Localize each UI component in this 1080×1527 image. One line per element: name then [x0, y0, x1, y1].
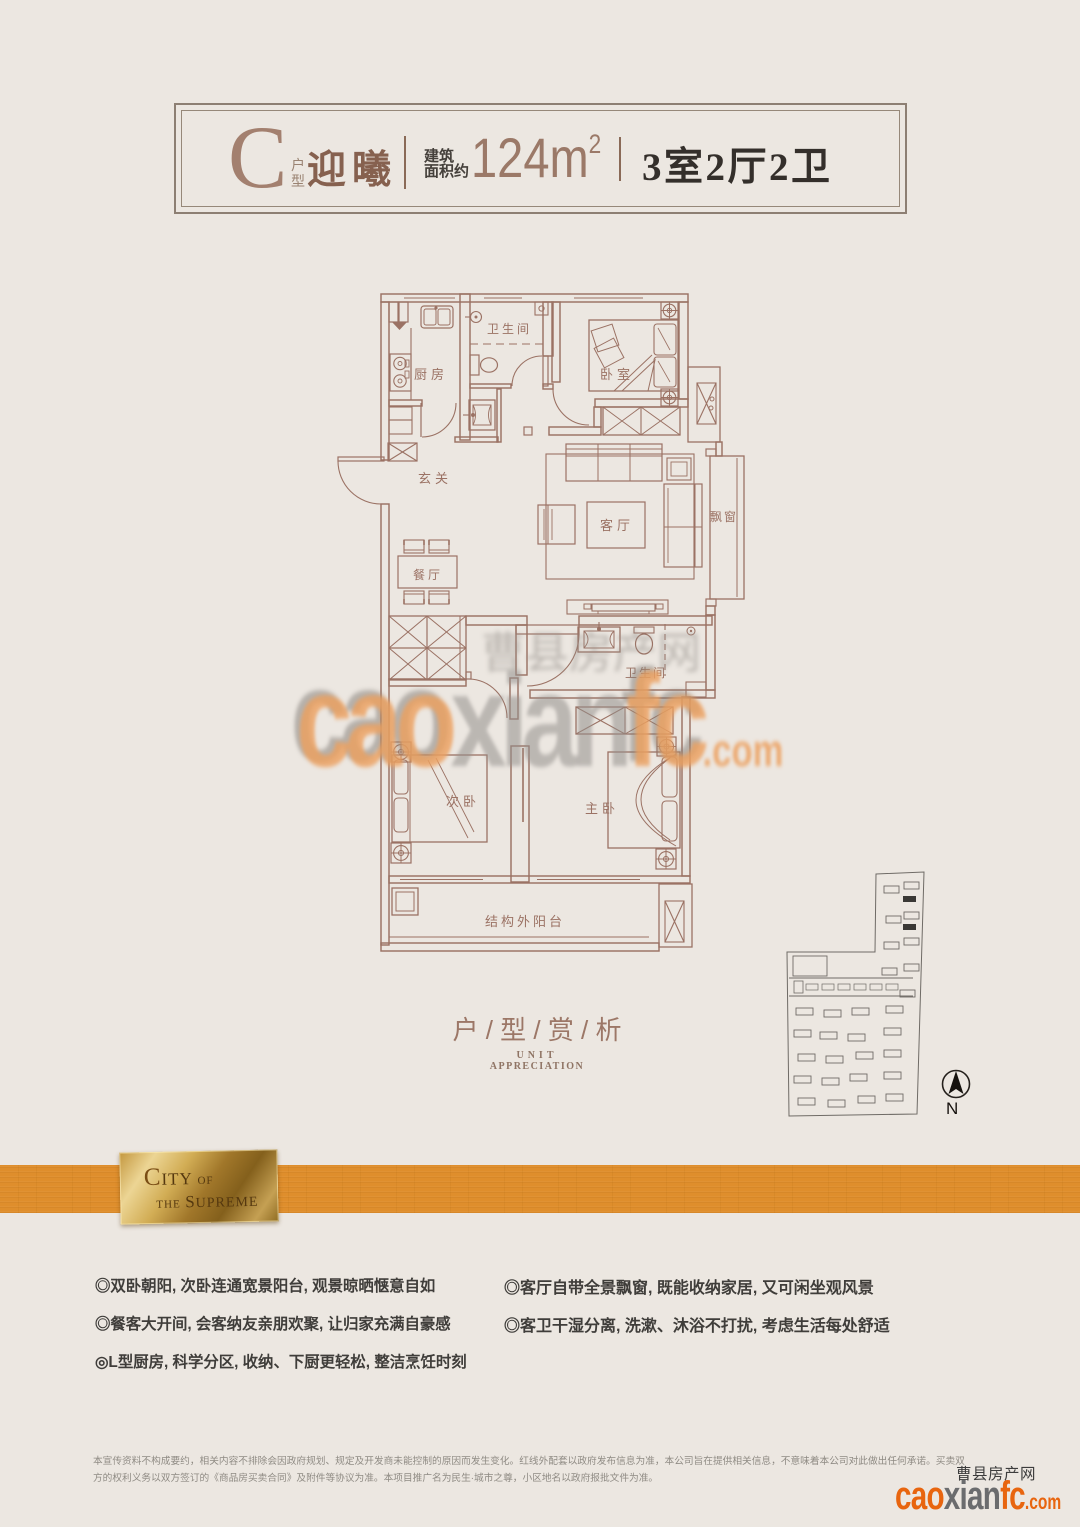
svg-text:卧室: 卧室: [600, 367, 634, 382]
svg-text:厨房: 厨房: [414, 367, 448, 382]
svg-text:N: N: [946, 1099, 958, 1118]
svg-text:主卧: 主卧: [585, 801, 619, 816]
svg-text:结构外阳台: 结构外阳台: [485, 914, 565, 929]
svg-text:卫生间: 卫生间: [487, 322, 532, 336]
svg-text:玄关: 玄关: [418, 471, 452, 486]
svg-text:餐厅: 餐厅: [413, 567, 443, 582]
svg-text:飘窗: 飘窗: [710, 510, 738, 524]
svg-text:客厅: 客厅: [600, 518, 634, 533]
svg-text:次卧: 次卧: [446, 794, 480, 809]
